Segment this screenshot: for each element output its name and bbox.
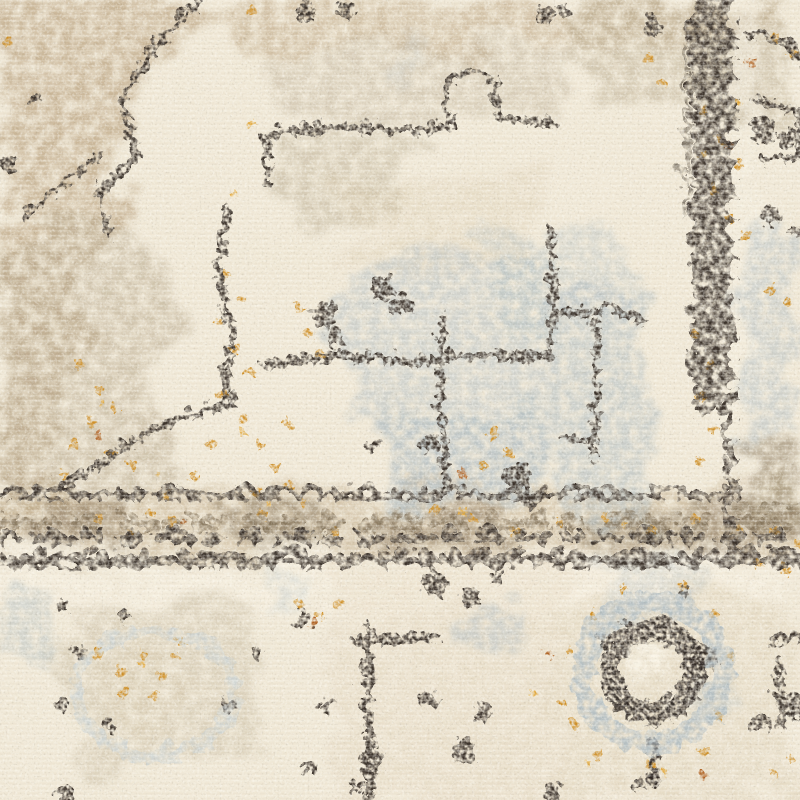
rug-photo xyxy=(0,0,800,800)
rug-photo-canvas xyxy=(0,0,800,800)
pile-fuzz-dark xyxy=(0,0,800,800)
